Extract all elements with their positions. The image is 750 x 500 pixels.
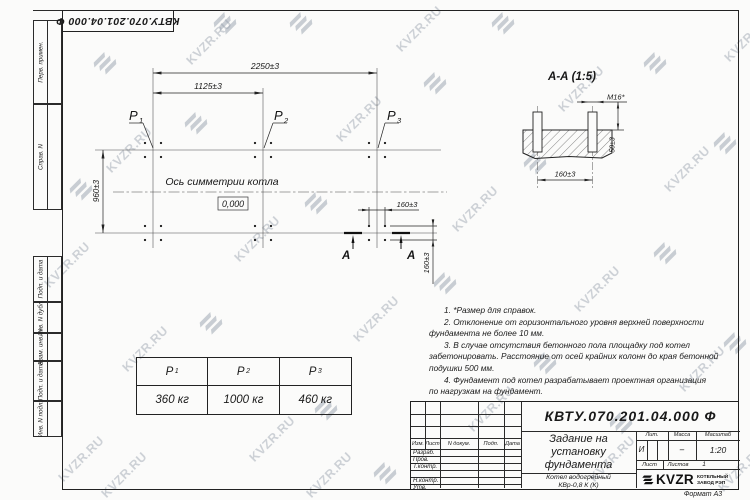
- title-block: Изм. Лист N докум. Подп. Дата Разраб. Пр…: [410, 401, 739, 490]
- tb-row-nkontr: Н.контр.: [413, 478, 438, 484]
- load-table-header-p1: Р1: [137, 358, 208, 386]
- tb-col-data: Дата: [504, 441, 521, 447]
- note-line: фундамента не более 10 мм.: [429, 328, 741, 340]
- tb-sheets-value: 1: [695, 461, 713, 468]
- load-table-value-p1: 360 кг: [137, 386, 208, 414]
- load-point-label-p3-sub: 3: [397, 116, 402, 125]
- load-table-header-p3: Р3: [280, 358, 351, 386]
- margin-label-vzam-inv: Взам. инв. N: [33, 333, 62, 361]
- tb-mass-value: –: [668, 445, 696, 454]
- section-dim-160-label: 160±3: [555, 170, 577, 179]
- tb-drawing-title: Задание на установку фундамента: [521, 433, 636, 472]
- section-thread-dim-label: М16*: [607, 93, 626, 102]
- level-mark-value: 0,000: [222, 199, 244, 209]
- tb-sheets-label: Листов: [665, 462, 691, 468]
- note-line: 2. Отклонение от горизонтального уровня …: [429, 317, 741, 329]
- foundation-plan-view: 2250±3 1125±3 960±3 160±3 160±3 Р 1 Р 2 …: [85, 58, 455, 303]
- anchor-bolt-dots: [144, 142, 386, 241]
- format-label: Формат А3: [668, 491, 738, 498]
- tb-mass-header: Масса: [668, 432, 696, 438]
- dimension-arrows: [102, 72, 435, 247]
- tb-row-utv: Утв.: [413, 485, 427, 491]
- tb-sheet-label: Лист: [636, 462, 663, 468]
- margin-label-sprav-n: Справ. N: [33, 104, 62, 210]
- load-point-label-p3: Р: [387, 108, 396, 123]
- margin-label-podp-data-2: Подп. и дата: [33, 361, 62, 401]
- doc-number-stamp-rotated: КВТУ.070.201.04.000 Ф: [62, 10, 174, 32]
- tb-company-name: КОТЕЛЬНЫЙ ЗАВОД РЭП: [697, 475, 728, 486]
- plan-dim-960-label: 960±3: [92, 179, 101, 202]
- plan-dim-160-h-label: 160±3: [397, 200, 419, 209]
- note-line: по нагрузкам на фундамент.: [429, 386, 741, 398]
- kvzr-logo-mark: [641, 472, 654, 488]
- margin-top-line: [33, 10, 62, 11]
- load-point-label-p2-sub: 2: [283, 116, 289, 125]
- plan-dim-2250-label: 2250±3: [250, 61, 280, 71]
- tb-scale-value: 1:20: [696, 445, 740, 455]
- load-table-value-p2: 1000 кг: [208, 386, 279, 414]
- tb-doc-number: КВТУ.070.201.04.000 Ф: [521, 408, 740, 424]
- drawing-sheet: KVZR.RUKVZR.RUKVZR.RUKVZR.RUKVZR.RUKVZR.…: [0, 0, 750, 500]
- note-line: 1. *Размер для справок.: [429, 305, 741, 317]
- section-cut-label-right: А: [406, 250, 415, 262]
- section-title: А-А (1:5): [547, 71, 596, 83]
- note-line: забетонировать. Расстояние от осей крайн…: [429, 351, 741, 363]
- tb-col-izm: Изм.: [411, 441, 425, 447]
- construction-lines: [95, 68, 441, 248]
- tb-scale-header: Масштаб: [696, 432, 740, 438]
- margin-label-inv-podl: Инв. N подл.: [33, 401, 62, 437]
- section-a-a-view: А-А (1:5) М16* 50±3 160±3: [505, 58, 685, 203]
- plan-dim-1125-label: 1125±3: [194, 81, 222, 91]
- technical-notes: 1. *Размер для справок. 2. Отклонение от…: [429, 305, 741, 398]
- tb-row-tkontr: Т.контр.: [413, 464, 437, 470]
- plan-dim-160-v-label: 160±3: [422, 252, 431, 274]
- tb-col-list: Лист: [425, 441, 440, 447]
- load-point-label-p1-sub: 1: [139, 116, 143, 125]
- tb-product-name: Котел водогрейный КВр-0,8 К (К): [521, 474, 636, 490]
- section-cut-label-left: А: [341, 250, 350, 262]
- note-line: 3. В случае отсутствия бетонного пола пл…: [429, 340, 741, 352]
- load-point-label-p2: Р: [274, 108, 283, 123]
- margin-label-perv-primen: Перв. примен.: [33, 20, 62, 104]
- doc-number-stamp-text: КВТУ.070.201.04.000 Ф: [56, 15, 180, 27]
- tb-row-razrab: Разраб.: [413, 450, 435, 456]
- axis-of-symmetry-label: Ось симметрии котла: [165, 176, 278, 188]
- tb-col-dokum: N докум.: [440, 441, 478, 447]
- note-line: 4. Фундамент под котел разрабатывает про…: [429, 375, 741, 387]
- load-point-label-p1: Р: [129, 108, 138, 123]
- load-table-header-p2: Р2: [208, 358, 279, 386]
- note-line: подушки 500 мм.: [429, 363, 741, 375]
- margin-label-podp-data-1: Подп. и дата: [33, 256, 62, 302]
- section-dim-50-label: 50±3: [610, 137, 617, 153]
- load-table-value-p3: 460 кг: [280, 386, 351, 414]
- tb-lit-header: Лит.: [636, 432, 668, 438]
- load-point-leaders: [129, 123, 399, 148]
- tb-row-prov: Пров.: [413, 457, 429, 463]
- load-table: Р1 Р2 Р3 360 кг 1000 кг 460 кг: [136, 357, 352, 415]
- tb-lit-value: И: [636, 445, 647, 454]
- tb-col-podp: Подп.: [478, 441, 504, 447]
- kvzr-logo-text: KVZR: [656, 472, 694, 487]
